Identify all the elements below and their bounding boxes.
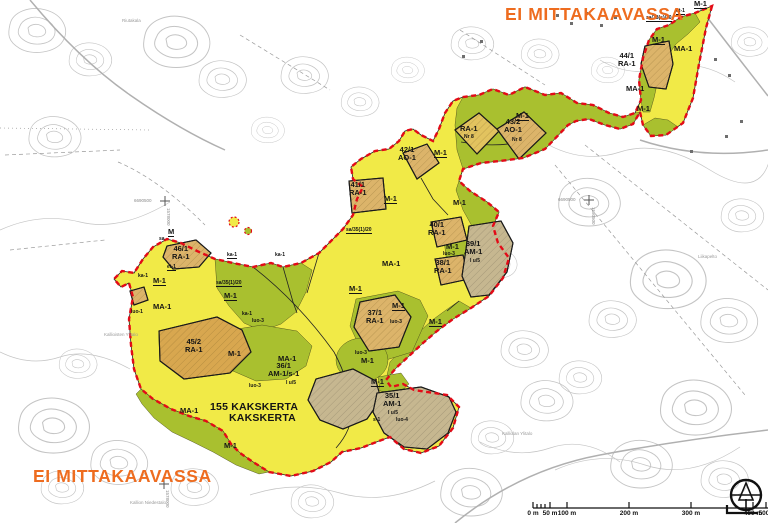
plan-islets xyxy=(229,217,252,235)
parcel-label-44-ra1: 44/1 RA-1 xyxy=(618,52,636,68)
zone-label-ma1-mid-blob: MA-1 xyxy=(626,85,644,93)
district-name: KAKSKERTA xyxy=(229,413,296,424)
zone-label-ka1-c: ka-1 xyxy=(138,274,148,279)
zone-label-m1-blob2: M-1 xyxy=(361,357,374,365)
zone-label-ka1-b: ka-1 xyxy=(275,253,285,258)
parcel-label-39-am1: 39/1 AM-1 xyxy=(464,240,482,256)
zone-label-m-w: M xyxy=(168,228,174,237)
grid-coordinate: 1580500 xyxy=(591,207,596,225)
zone-label-m1-42: M-1 xyxy=(434,149,447,158)
parcel-sub-nr8-a: Nr 8 xyxy=(464,135,474,140)
parcel-label-41-ra1: 41/1 RA-1 xyxy=(349,181,367,197)
zone-label-ma1-central: MA-1 xyxy=(382,260,400,268)
zone-label-m1-nw: M-1 xyxy=(224,292,237,301)
parcel-sub-35: I u/5 xyxy=(388,411,398,416)
zone-label-et1-w: et-1 xyxy=(167,265,176,271)
zone-label-m1-45e: M-1 xyxy=(228,350,241,358)
zone-label-m1-s: M-1 xyxy=(224,442,237,450)
zone-label-sa-w: sa xyxy=(159,237,165,242)
place-name: Kalliolan Ylitalo xyxy=(502,431,532,436)
place-name: Riutakala xyxy=(122,18,141,23)
zone-label-m1-e: M-1 xyxy=(453,199,466,207)
grid-coordinate: 1578000 xyxy=(166,208,171,226)
grid-coordinate: 1578000 xyxy=(165,490,170,508)
place-name: Kallioisten Ylitalo xyxy=(104,332,138,337)
zone-label-m1-36e: M-1 xyxy=(371,378,384,387)
parcel-label-35-am1: 35/1 AM-1 xyxy=(383,392,401,408)
zone-label-m1-w: M-1 xyxy=(153,277,166,286)
parcel-label-45-ra1: 45/2 RA-1 xyxy=(185,338,203,354)
grid-coordinate: 6690500 xyxy=(134,198,152,203)
parcel-label-40-ra1: 40/1 RA-1 xyxy=(428,221,446,237)
place-name: Liikapelto xyxy=(698,254,717,259)
zone-label-s1-35: s-1 xyxy=(373,418,380,423)
scale-tick-label: 100 m xyxy=(558,510,576,517)
zone-label-luo3-c: luo-3 xyxy=(252,319,264,324)
not-to-scale-heading-bottom: EI MITTAKAAVASSA xyxy=(33,466,212,487)
zone-label-luo3-s: luo-3 xyxy=(249,384,261,389)
zone-label-ma1-w: MA-1 xyxy=(153,303,171,311)
zone-label-m1-blob-w: M-1 xyxy=(652,36,665,45)
zone-label-m1-41: M-1 xyxy=(384,195,397,204)
parcel-label-42-ao1: 42/1 AO-1 xyxy=(398,146,416,162)
zone-label-m1-coast-c: M-1 xyxy=(429,318,442,327)
zone-label-luo1-w: luo-1 xyxy=(131,310,143,315)
place-name: Kallion Niedestalo xyxy=(130,500,166,505)
zone-label-ma1-s: MA-1 xyxy=(180,407,198,415)
zone-label-m1-coast-b: M-1 xyxy=(392,302,405,311)
zone-label-ka1-d: ka-1 xyxy=(242,312,252,317)
zone-label-m1-coast-a: M-1 xyxy=(349,285,362,294)
scale-tick-label: 0 m xyxy=(527,510,538,517)
zone-label-sa35-w: sa/35(1)/20 xyxy=(216,281,242,287)
zone-label-luo4-35: luo-4 xyxy=(396,418,408,423)
parcel-label-ra1-nr8: RA-1 xyxy=(460,125,478,133)
zone-label-sa35-e: sa/35(1)/20 xyxy=(346,228,372,234)
zone-label-m1-ne-tip: M-1 xyxy=(694,0,707,9)
zone-label-luo3-40s: luo-3 xyxy=(443,252,455,257)
scale-tick-label: 50 m xyxy=(543,510,558,517)
plan-map-canvas: M-1et-1sa/38(s)/20M-1MA-144/1 RA-1MA-1M-… xyxy=(0,0,768,523)
grid-coordinate: 6690500 xyxy=(558,197,576,202)
parcel-label-43-ao1: 43/2 AO-1 xyxy=(504,118,522,134)
parcel-label-37-ra1: 37/1 RA-1 xyxy=(366,309,384,325)
parcel-label-36-am1: 36/1 AM-1/s-1 xyxy=(268,362,299,378)
zone-label-m1-blob-s: M-1 xyxy=(637,105,650,113)
parcel-label-46-ra1: 46/1 RA-1 xyxy=(172,245,190,261)
zone-label-m1-40s: M-1 xyxy=(446,243,459,251)
parcel-label-38-ra1: 38/1 RA-1 xyxy=(434,259,452,275)
scale-tick-label: 200 m xyxy=(620,510,638,517)
scale-tick-label: 300 m xyxy=(682,510,700,517)
parcel-sub-39: I u/5 xyxy=(470,259,480,264)
zone-label-ka1-a: ka-1 xyxy=(227,253,237,259)
parcel-sub-nr8-b: Nr 8 xyxy=(512,138,522,143)
parcel-sub-36: I u/5 xyxy=(286,381,296,386)
zone-label-ma1-blob: MA-1 xyxy=(674,45,692,53)
scale-tick-label: 500 xyxy=(759,510,768,517)
not-to-scale-heading-top: EI MITTAKAAVASSA xyxy=(505,4,684,25)
zone-label-luo3-37: luo-3 xyxy=(390,320,402,325)
